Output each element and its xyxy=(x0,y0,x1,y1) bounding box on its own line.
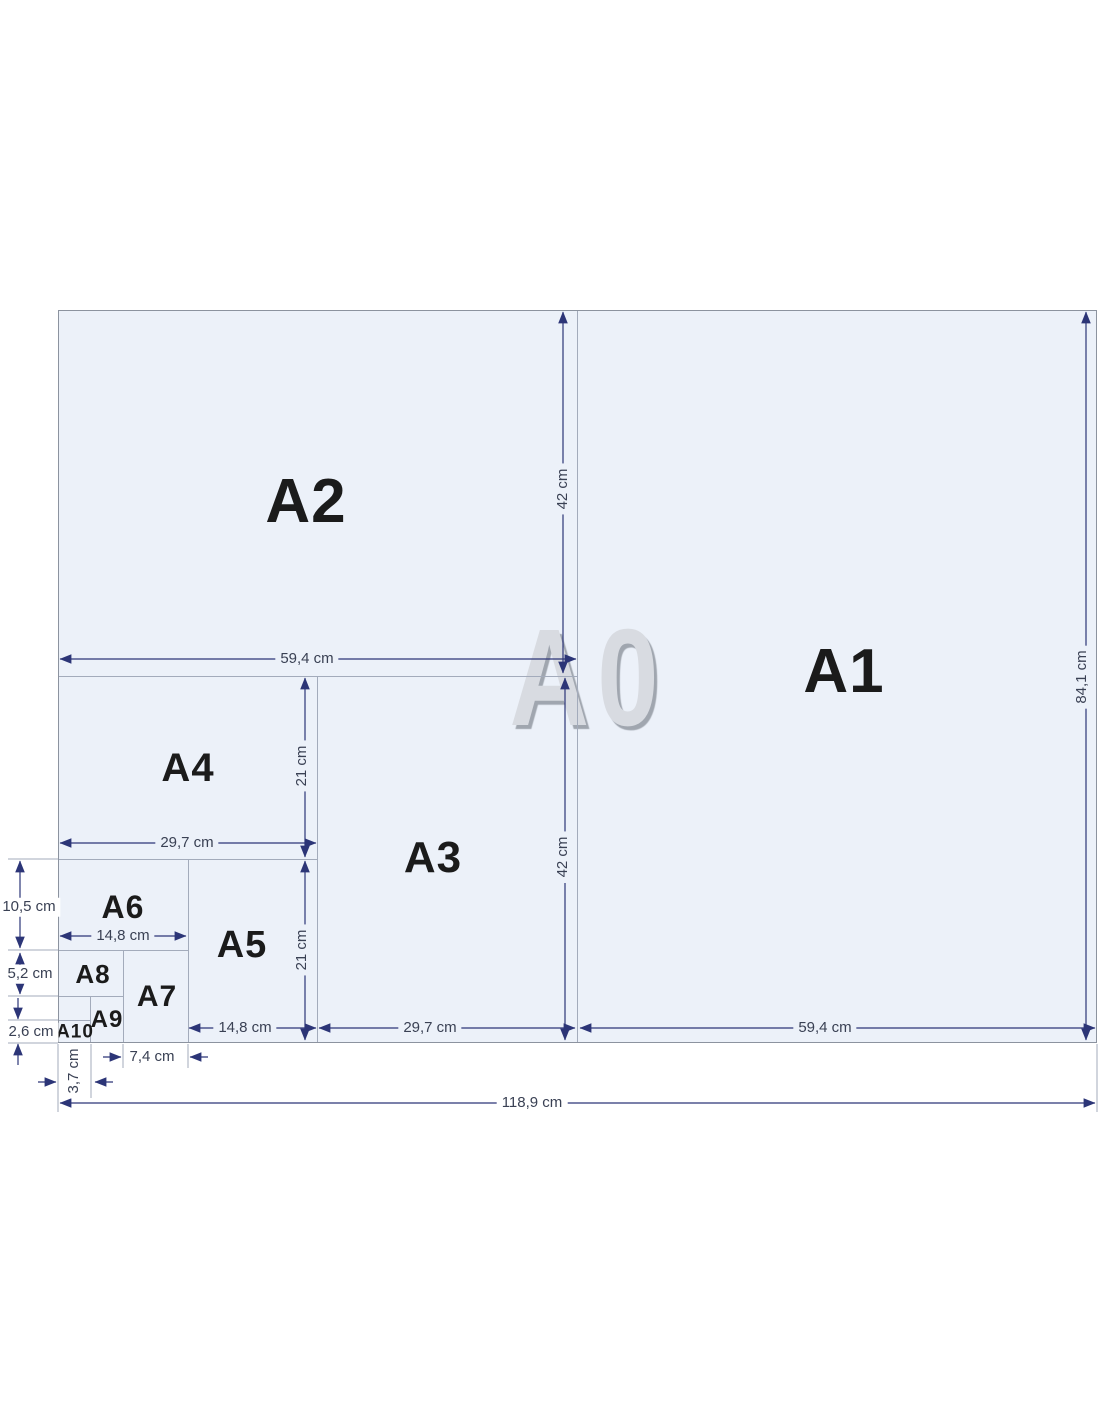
dim-label-a6-height: 10,5 cm xyxy=(0,898,61,917)
dim-label-a10-width: 3,7 cm xyxy=(65,1043,84,1098)
dim-label-a7-width: 7,4 cm xyxy=(124,1048,179,1067)
dim-label-a2-width: 59,4 cm xyxy=(275,650,338,669)
dim-label-a1-height: 84,1 cm xyxy=(1073,645,1092,708)
dim-label-a3-width: 29,7 cm xyxy=(398,1019,461,1038)
region-label-a8: A8 xyxy=(75,961,110,987)
region-label-a7: A7 xyxy=(137,982,177,1012)
region-label-a10: A10 xyxy=(56,1023,94,1042)
dim-label-a5-width: 14,8 cm xyxy=(213,1019,276,1038)
region-label-a3: A3 xyxy=(404,836,462,880)
dim-label-a0-width: 118,9 cm xyxy=(497,1094,568,1113)
paper-sizes-diagram: A0 A2 A1 A4 A3 A6 A5 A8 A7 A9 A10 xyxy=(0,0,1100,1422)
divider-a8-bottom xyxy=(59,996,124,997)
dim-label-a4-width: 29,7 cm xyxy=(155,834,218,853)
divider-a2-bottom xyxy=(59,676,578,677)
dim-label-a4-height: 21 cm xyxy=(293,741,312,792)
region-label-a9: A9 xyxy=(91,1008,124,1032)
dim-label-a2-height: 42 cm xyxy=(554,464,573,515)
dim-label-a6-width: 14,8 cm xyxy=(91,927,154,946)
divider-a6-bottom xyxy=(59,950,189,951)
dim-label-a3-height: 42 cm xyxy=(554,832,573,883)
dim-label-a8-height: 5,2 cm xyxy=(2,965,57,984)
region-label-a4: A4 xyxy=(161,748,214,788)
dim-label-a5-height: 21 cm xyxy=(293,925,312,976)
region-label-a6: A6 xyxy=(102,891,145,923)
region-label-a1: A1 xyxy=(803,641,884,703)
region-label-a2: A2 xyxy=(265,471,346,533)
dim-label-a10-height: 2,6 cm xyxy=(3,1023,58,1042)
dim-label-a1-width: 59,4 cm xyxy=(793,1019,856,1038)
region-label-a5: A5 xyxy=(217,926,268,964)
a0-watermark-label: A0 xyxy=(509,609,666,747)
